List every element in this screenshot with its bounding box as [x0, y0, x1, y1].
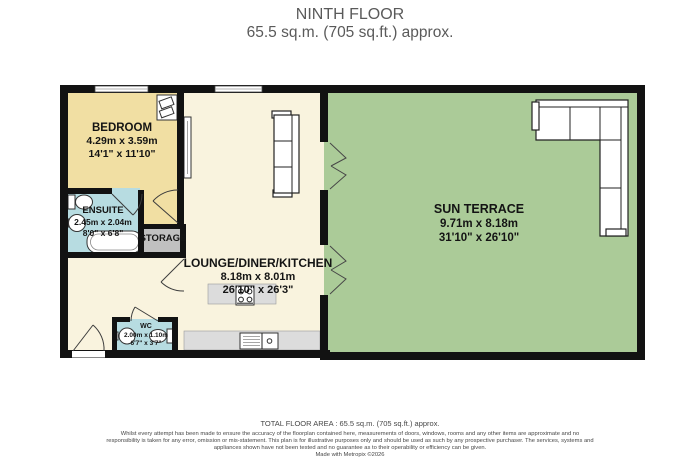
terrace-imperial: 31'10" x 26'10" [434, 231, 524, 245]
lounge-label: LOUNGE/DINER/KITCHEN 8.18m x 8.01m 26'10… [184, 256, 333, 297]
wall-wc-top-a [112, 317, 130, 322]
wc-label: WC 2.00m x 1.10m 6'7" x 3'7" [124, 323, 168, 348]
wall-hall-top [60, 252, 186, 258]
bedroom-name: BEDROOM [86, 121, 157, 135]
wall-bedroom-right [177, 93, 184, 225]
kitchen-sink-unit [240, 333, 278, 349]
wall-storage-top [138, 224, 186, 229]
disclaimer-text: Whilst every attempt has been made to en… [104, 431, 596, 452]
terrace-name: SUN TERRACE [434, 202, 524, 217]
wall-wc-right [172, 317, 178, 352]
floorplan-page: NINTH FLOOR 65.5 sq.m. (705 sq.ft.) appr… [0, 0, 700, 476]
wc-imperial: 6'7" x 3'7" [124, 340, 168, 348]
wall-divider-seg1 [320, 93, 328, 142]
credit-text: Made with Metropix ©2026 [0, 452, 700, 459]
wc-name: WC [124, 323, 168, 332]
wall-divider-seg2 [320, 190, 328, 245]
total-floor-area: TOTAL FLOOR AREA : 65.5 sq.m. (705 sq.ft… [0, 419, 700, 428]
bedroom-metric: 4.29m x 3.59m [86, 135, 157, 148]
lounge-sofa [272, 111, 299, 197]
wall-wc-left [112, 317, 117, 352]
lounge-metric: 8.18m x 8.01m [184, 271, 333, 284]
ensuite-name: ENSUITE [74, 205, 132, 217]
storage-name: STORAGE [140, 233, 187, 245]
wall-ensuite-top [64, 188, 112, 194]
radiator [184, 117, 191, 178]
terrace-label: SUN TERRACE 9.71m x 8.18m 31'10" x 26'10… [434, 202, 524, 245]
lounge-name: LOUNGE/DINER/KITCHEN [184, 256, 333, 271]
ensuite-imperial: 8'0" x 6'8" [74, 228, 132, 239]
wall-divider-seg3 [320, 295, 328, 352]
entry-opening [72, 351, 105, 358]
ensuite-metric: 2.45m x 2.04m [74, 217, 132, 228]
bedroom-bedside-unit [157, 95, 177, 120]
wall-top-terrace [320, 85, 645, 93]
wall-right-terrace [637, 85, 645, 360]
bedroom-vestibule-floor [140, 189, 178, 226]
ensuite-label: ENSUITE 2.45m x 2.04m 8'0" x 6'8" [74, 205, 132, 238]
wall-bottom-terrace [320, 352, 645, 360]
bedroom-label: BEDROOM 4.29m x 3.59m 14'1" x 11'10" [86, 121, 157, 161]
wc-metric: 2.00m x 1.10m [124, 332, 168, 340]
storage-label: STORAGE [140, 233, 187, 245]
wall-left [60, 85, 68, 358]
footer: TOTAL FLOOR AREA : 65.5 sq.m. (705 sq.ft… [0, 419, 700, 459]
terrace-metric: 9.71m x 8.18m [434, 217, 524, 231]
wall-wc-top-b [158, 317, 178, 322]
bedroom-imperial: 14'1" x 11'10" [86, 148, 157, 161]
lounge-imperial: 26'10" x 26'3" [184, 284, 333, 297]
